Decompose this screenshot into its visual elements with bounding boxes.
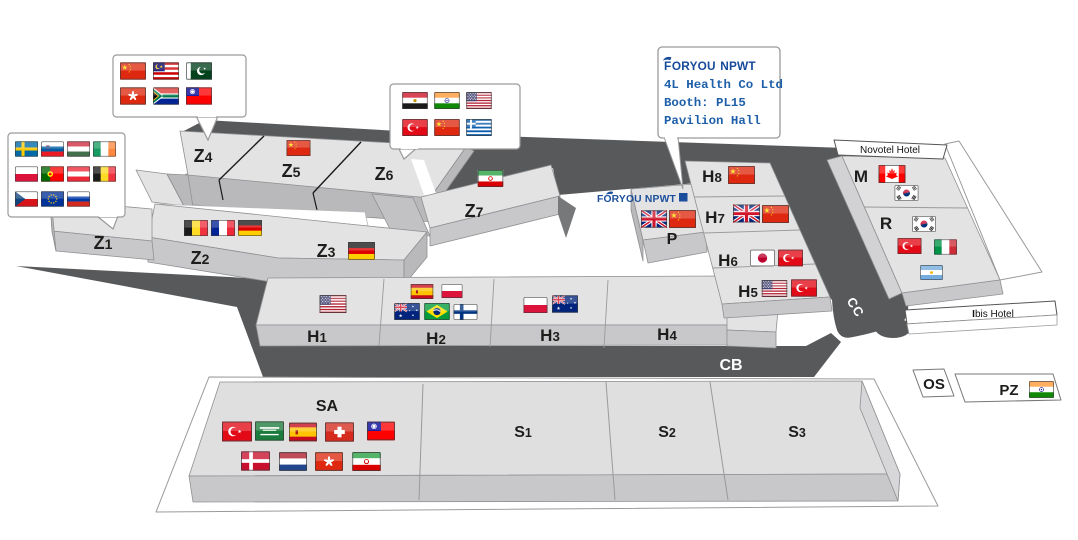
svg-text:Z2: Z2 [191, 248, 210, 268]
svg-text:Z5: Z5 [282, 161, 301, 181]
svg-text:Booth: PL15: Booth: PL15 [664, 96, 746, 110]
svg-text:Z6: Z6 [375, 164, 394, 184]
svg-text:H1: H1 [307, 327, 327, 346]
svg-text:CB: CB [719, 357, 742, 374]
svg-text:H2: H2 [426, 329, 446, 348]
svg-text:S2: S2 [658, 424, 676, 441]
svg-text:H7: H7 [705, 208, 725, 227]
svg-text:Novotel Hotel: Novotel Hotel [860, 145, 920, 156]
svg-text:Ibis Hotel: Ibis Hotel [972, 309, 1014, 320]
svg-text:H8: H8 [702, 167, 722, 186]
svg-text:Z3: Z3 [317, 241, 336, 261]
svg-text:FORYOU NPWT: FORYOU NPWT [664, 59, 756, 73]
svg-text:4L Health Co Ltd: 4L Health Co Ltd [664, 78, 783, 92]
svg-text:PZ: PZ [999, 382, 1018, 399]
svg-text:FORYOU NPWT: FORYOU NPWT [597, 194, 677, 205]
svg-text:SA: SA [316, 398, 339, 415]
svg-text:H4: H4 [657, 325, 677, 344]
svg-text:Pavilion Hall: Pavilion Hall [664, 114, 761, 128]
svg-text:H6: H6 [718, 251, 738, 270]
svg-text:Z7: Z7 [465, 201, 484, 221]
svg-text:Z1: Z1 [94, 233, 113, 253]
svg-text:OS: OS [923, 376, 945, 393]
svg-text:H5: H5 [738, 282, 758, 301]
svg-text:Z4: Z4 [194, 146, 213, 166]
svg-text:P: P [667, 231, 678, 248]
svg-text:R: R [880, 214, 892, 233]
svg-text:S3: S3 [788, 424, 806, 441]
svg-text:H3: H3 [540, 326, 560, 345]
svg-text:S1: S1 [514, 424, 532, 441]
svg-text:M: M [854, 167, 868, 186]
